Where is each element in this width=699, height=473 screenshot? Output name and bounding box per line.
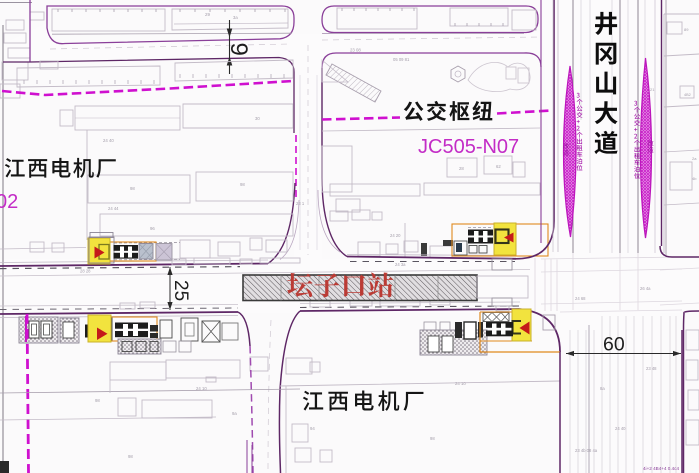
svg-text:26 4a: 26 4a: [640, 286, 651, 291]
svg-text:23 4b 08 4a: 23 4b 08 4a: [575, 448, 598, 453]
svg-text:24 3a: 24 3a: [395, 262, 406, 267]
svg-text:8a: 8a: [600, 386, 605, 391]
svg-text:24 20: 24 20: [390, 233, 401, 238]
svg-text:2a: 2a: [692, 156, 697, 161]
svg-text:21: 21: [650, 87, 655, 92]
svg-text:3a: 3a: [233, 15, 238, 20]
svg-text:28: 28: [459, 166, 464, 171]
svg-text:28 28: 28 28: [80, 269, 91, 274]
svg-text:89: 89: [684, 27, 689, 32]
svg-text:60: 60: [603, 334, 625, 356]
svg-text:30: 30: [255, 116, 260, 121]
svg-text:29: 29: [205, 12, 211, 17]
svg-text:25: 25: [170, 280, 191, 301]
svg-text:4i+2 4B4+4 0.4c4: 4i+2 4B4+4 0.4c4: [643, 466, 679, 471]
svg-text:02: 02: [0, 191, 18, 213]
svg-text:94: 94: [310, 426, 315, 431]
svg-text:96: 96: [150, 226, 155, 231]
svg-text:24 10: 24 10: [455, 381, 466, 386]
svg-text:23 1: 23 1: [296, 201, 305, 206]
svg-text:4b: 4b: [692, 176, 697, 181]
svg-text:98: 98: [95, 398, 100, 403]
svg-text:24 10: 24 10: [196, 386, 207, 391]
svg-text:24 40: 24 40: [103, 138, 114, 143]
svg-text:98: 98: [240, 182, 245, 187]
svg-text:24 68: 24 68: [575, 296, 586, 301]
svg-text:24 40: 24 40: [615, 426, 626, 431]
svg-text:98: 98: [430, 436, 435, 441]
svg-text:05 09 81: 05 09 81: [393, 57, 410, 62]
svg-text:23 08: 23 08: [350, 48, 361, 53]
svg-text:98: 98: [130, 186, 135, 191]
svg-text:98: 98: [128, 454, 133, 459]
svg-text:23 48: 23 48: [646, 366, 657, 371]
svg-text:9: 9: [225, 43, 252, 56]
svg-text:62: 62: [496, 164, 501, 169]
svg-text:4B2: 4B2: [684, 93, 691, 97]
svg-text:JC505-N07: JC505-N07: [418, 136, 519, 158]
svg-text:24 44: 24 44: [108, 206, 119, 211]
svg-text:9a: 9a: [232, 411, 237, 416]
